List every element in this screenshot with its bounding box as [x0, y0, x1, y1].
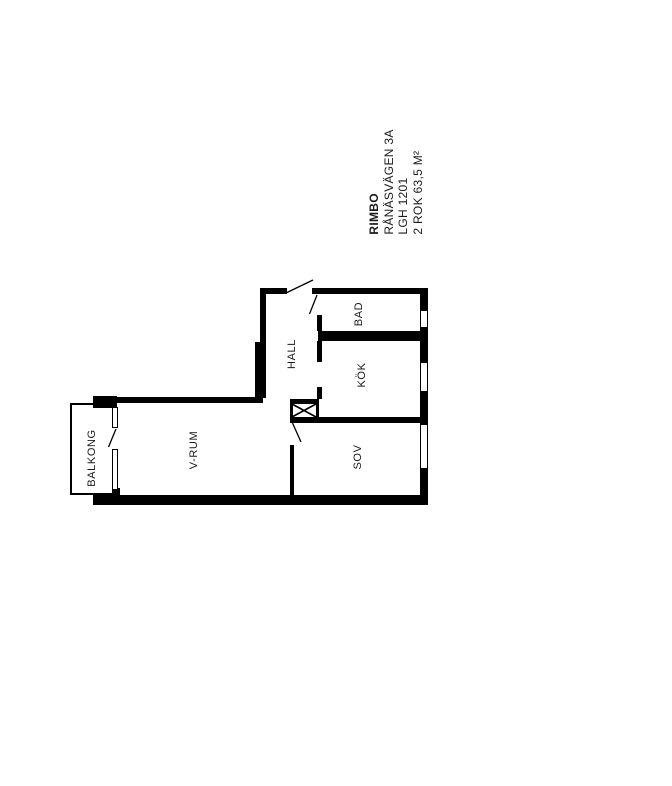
kok-window [420, 362, 428, 392]
balcony-window-lower [112, 449, 118, 490]
shaft-right-edge [316, 399, 319, 423]
title-size: 2 ROK 63,5 M² [411, 129, 426, 234]
room-label-v-rum: V-RUM [188, 431, 200, 469]
wall-hall-left-thin [260, 294, 266, 342]
title-project: RIMBO [367, 129, 382, 234]
wall-right-mid2 [420, 392, 428, 424]
bad-door-swing [310, 295, 318, 314]
wall-hall-bad [317, 315, 322, 331]
room-label-hall: HALL [286, 339, 298, 369]
sov-window [420, 424, 428, 469]
wall-hall-kok-upper [317, 341, 322, 362]
room-label-balkong: BALKONG [86, 429, 98, 486]
wall-vrum-sov [290, 445, 294, 495]
wall-vrum-top [93, 397, 263, 403]
wall-bad-kok [318, 331, 420, 341]
title-block: RIMBO RÅNÄSVÄGEN 3A LGH 1201 2 ROK 63,5 … [367, 129, 425, 234]
door-swing-layer [0, 0, 672, 786]
floor-plan-page: BALKONG V-RUM HALL BAD KÖK SOV RIMBO RÅN… [0, 0, 672, 786]
wall-top-main [312, 288, 428, 294]
title-apartment-number: LGH 1201 [396, 129, 411, 234]
wall-hall-kok-lower [317, 387, 322, 399]
wall-kok-sov [290, 417, 420, 423]
shaft-cross-diagonal-2 [292, 404, 316, 417]
bad-window [420, 310, 428, 328]
room-label-sov: SOV [352, 444, 364, 469]
wall-bottom [93, 495, 428, 505]
room-label-kok: KÖK [356, 362, 368, 387]
shaft-top-edge [290, 399, 319, 404]
wall-hall-left-thick [255, 342, 266, 398]
wall-right-mid1 [420, 328, 428, 362]
title-address: RÅNÄSVÄGEN 3A [382, 129, 397, 234]
shaft-cross-diagonal-1 [292, 404, 316, 417]
balcony-window-upper [112, 407, 118, 428]
wall-right-upper [420, 288, 428, 310]
room-label-bad: BAD [353, 302, 365, 326]
entry-door-swing [287, 280, 313, 293]
sov-door-swing [293, 423, 302, 442]
floor-plan: BALKONG V-RUM HALL BAD KÖK SOV RIMBO RÅN… [0, 0, 672, 786]
shaft-left-edge [290, 399, 293, 423]
